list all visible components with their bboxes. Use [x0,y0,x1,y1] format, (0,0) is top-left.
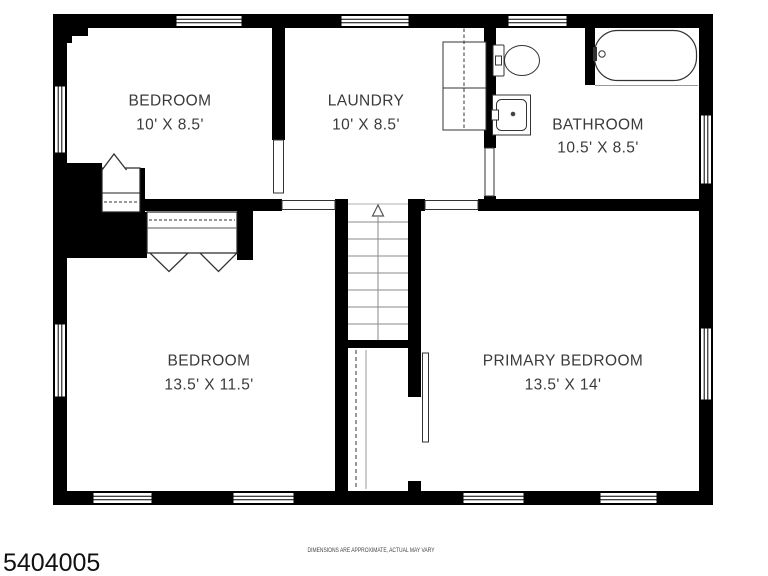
bedroom-lower-closet [147,212,237,272]
door-leaf-bedroom-top [274,140,284,193]
window [55,83,66,156]
stairs-up-arrow-icon [373,205,384,216]
room-dims-laundry: 10' X 8.5' [332,117,400,134]
room-label-bedroom-top: BEDROOM [129,93,212,110]
wall-corner-step [53,36,72,43]
doors [274,140,495,442]
window [701,325,712,403]
window [55,321,66,400]
door-leaf-bathroom [485,148,494,196]
bathtub-basin [595,31,697,81]
window [90,493,155,504]
door-opening-primary-bedroom [425,201,478,210]
window [230,493,297,504]
door-leaf-primary-bedroom [423,353,429,442]
disclaimer-text: DIMENSIONS ARE APPROXIMATE, ACTUAL MAY V… [308,548,435,554]
bathtub-faucet [593,47,597,61]
wall-closet-mass [53,163,102,258]
window [460,493,527,504]
room-label-primary-bedroom: PRIMARY BEDROOM [483,353,643,370]
wall-laundry-bathroom-stub [484,196,496,211]
floor-plan-image: BEDROOM 10' X 8.5' LAUNDRY 10' X 8.5' BA… [0,0,768,576]
toilet-bowl [505,46,540,76]
closet-box [147,212,237,253]
window [701,112,712,187]
sink-drain [511,112,516,117]
bedroom-top-closet [102,154,140,212]
wall-right [699,14,713,505]
sink [492,95,531,135]
footer: 5404005 DIMENSIONS ARE APPROXIMATE, ACTU… [3,548,435,576]
room-label-bathroom: BATHROOM [552,117,644,134]
toilet-tank [493,45,504,76]
sink-faucet [492,110,499,120]
window [597,493,660,504]
bifold-door-chevron-icon [150,253,188,272]
wall-hall-primary [408,199,425,211]
stairs-steps [348,217,408,340]
bathtub-faucet-knob [599,51,605,57]
window [505,16,570,27]
bifold-door-chevron-icon [200,253,237,272]
wall-stairs-right [408,199,421,397]
wall-bedroom-laundry [272,14,285,140]
wall-hall-lower-bedroom [145,199,282,211]
closet-niche [102,168,140,212]
wall-bathroom-primary [478,199,713,211]
understairs-closet [356,350,366,489]
listing-id: 5404005 [3,549,100,576]
room-dims-bathroom: 10.5' X 8.5' [557,140,638,157]
outer-walls [53,14,713,505]
window [173,16,245,27]
wall-door-stub [408,481,421,491]
door-opening-lower-bedroom [282,201,335,210]
toilet [493,45,540,76]
wall-stairs-bottom [335,340,421,348]
wall-corner-step [53,28,88,36]
room-dims-primary-bedroom: 13.5' X 14' [525,377,602,394]
room-label-bedroom-lower: BEDROOM [168,353,251,370]
room-dims-bedroom-top: 10' X 8.5' [136,117,204,134]
bathtub [593,31,698,86]
staircase [348,204,408,340]
stacked-washer-dryer [443,29,486,131]
wall-closet-mass [102,212,147,258]
floor-plan-svg: BEDROOM 10' X 8.5' LAUNDRY 10' X 8.5' BA… [0,0,768,576]
window [338,16,412,27]
wall-closet-jamb-right [237,211,253,260]
windows [55,16,712,504]
room-label-laundry: LAUNDRY [328,93,405,110]
room-dims-bedroom-lower: 13.5' X 11.5' [164,377,253,394]
door-swing-chevron-icon [102,154,127,170]
